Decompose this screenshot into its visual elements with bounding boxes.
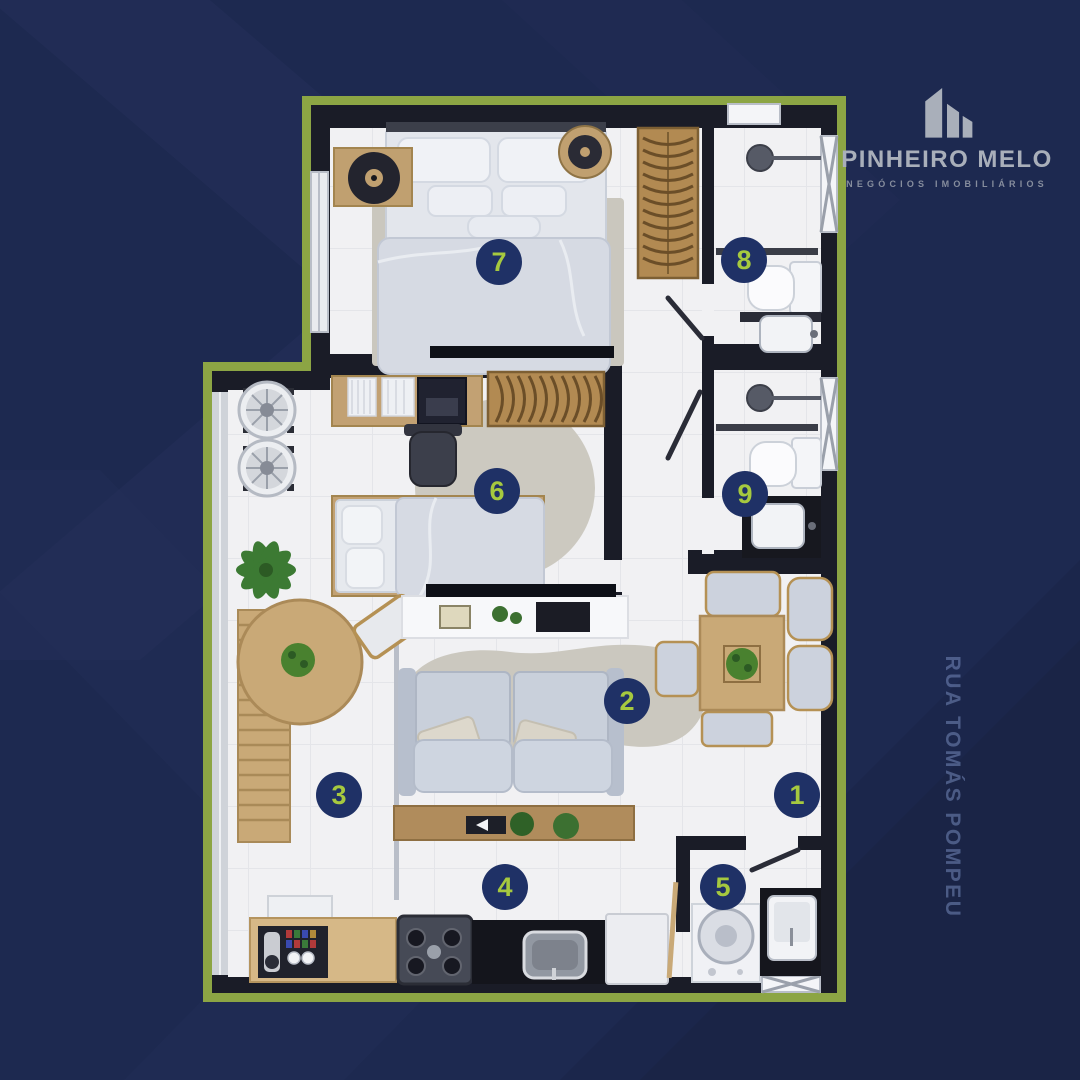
svg-text:6: 6 [489,476,504,506]
single-bed [332,496,544,596]
poster-canvas: 1 2 3 4 5 6 7 8 9 [0,0,1080,1080]
tv-console [402,596,628,638]
sofa-back-shelf [394,806,634,840]
sofa [398,668,624,796]
desk [332,376,482,426]
room-badge-2: 2 [604,678,650,724]
dining-bench-bottom [702,712,772,746]
utility-sink [760,888,821,976]
room-badge-7: 7 [476,239,522,285]
tv-living [426,584,616,597]
room-badge-4: 4 [482,864,528,910]
washing-machine [692,904,760,982]
street-label: RUA TOMÁS POMPEU [940,656,964,919]
wardrobe-open [488,372,604,426]
svg-text:9: 9 [737,479,752,509]
ac-unit-2 [239,440,295,496]
stove [398,916,472,984]
buildings-icon [917,82,977,140]
tv-bedroom1 [430,346,614,358]
window-top [728,104,780,124]
ac-unit-1 [239,382,295,438]
svg-text:2: 2 [619,686,634,716]
dining-seat-right-1 [788,578,832,640]
room-badge-3: 3 [316,772,362,818]
brand-logo: PINHEIRO MELO NEGÓCIOS IMOBILIÁRIOS [850,82,1044,189]
svg-text:1: 1 [789,780,804,810]
dining-chair-left [656,642,698,696]
room-badge-9: 9 [722,471,768,517]
shower-shelf [716,424,818,431]
round-table [238,600,362,724]
dining-table [700,616,784,710]
sink-counter [472,920,606,984]
svg-text:4: 4 [497,872,512,902]
svg-text:7: 7 [491,247,506,277]
dining-bench-top [706,572,780,616]
fridge [606,914,668,984]
window-bath1 [821,136,837,232]
room-badge-5: 5 [700,864,746,910]
brand-name: PINHEIRO MELO [841,146,1053,174]
closet-wardrobe [638,128,698,278]
brand-tagline: NEGÓCIOS IMOBILIÁRIOS [846,179,1048,189]
room-badge-6: 6 [474,468,520,514]
svg-text:5: 5 [715,872,730,902]
master-bedroom [334,122,624,374]
room-badge-1: 1 [774,772,820,818]
room-badge-8: 8 [721,237,767,283]
nightstand-left-lamp [348,152,400,204]
nightstand-right-lamp [559,126,611,178]
desk-chair [404,424,462,486]
svg-text:8: 8 [736,245,751,275]
svg-text:3: 3 [331,780,346,810]
window-laundry [762,976,820,992]
dining-seat-right-2 [788,646,832,710]
window-bath2 [821,378,837,470]
